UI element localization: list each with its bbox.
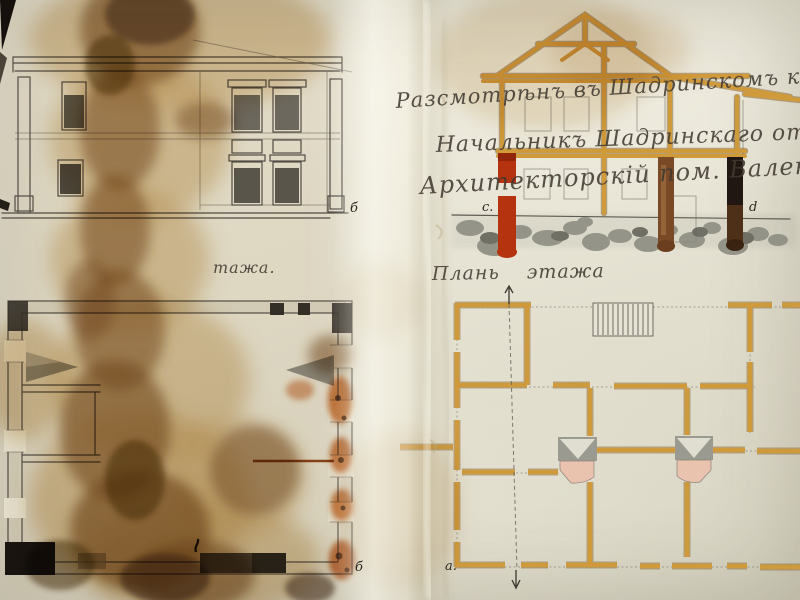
drawing-canvas: Разсмотрѣнъ въ Шадринскомъ ком. въ Начал… [0, 0, 800, 600]
stone [480, 232, 500, 244]
stain-blob [25, 540, 95, 590]
stone [768, 234, 788, 246]
brown-chimney-foot [657, 240, 675, 252]
stove-pink-base [560, 461, 594, 483]
stain-blob [175, 102, 235, 138]
stain-blob [85, 35, 135, 95]
stone [577, 217, 593, 227]
wall-segments [400, 303, 800, 567]
letter-left-plan-b: б [355, 560, 363, 575]
rust-spot [286, 380, 314, 400]
stain-blob [105, 440, 165, 520]
cut-dash-line [509, 304, 517, 570]
stone [692, 227, 708, 237]
stain-blob [65, 260, 115, 340]
black-chimney-lower [727, 205, 743, 243]
timber-walls-shadow [400, 303, 800, 567]
stove-left [558, 437, 597, 483]
letter-section-c: с. [482, 200, 493, 215]
stone [551, 231, 569, 241]
stone [582, 233, 610, 251]
stove-right [675, 436, 713, 482]
stone [608, 229, 632, 243]
stone [632, 227, 648, 237]
caption-right-plan: Плань этажа [431, 260, 605, 285]
caption-left-plan-partial: тажа. [213, 258, 276, 277]
letter-right-plan-a: а. [445, 559, 457, 574]
black-chimney-foot [726, 239, 744, 251]
photograph-of-archival-architectural-drawing: Разсмотрѣнъ въ Шадринскомъ ком. въ Начал… [0, 0, 800, 600]
cut-arrow-bottom [512, 570, 520, 588]
red-chimney-foot [497, 246, 517, 258]
letter-section-d: d [749, 200, 757, 215]
section-cut-line [505, 286, 520, 588]
floor-plan-right [400, 286, 800, 588]
staircase [593, 303, 653, 336]
stove-pink-base [677, 460, 711, 482]
stain-blob [210, 425, 300, 515]
stone [456, 220, 484, 236]
cut-arrow-top [505, 286, 513, 304]
letter-elevation-b: б [350, 201, 358, 216]
